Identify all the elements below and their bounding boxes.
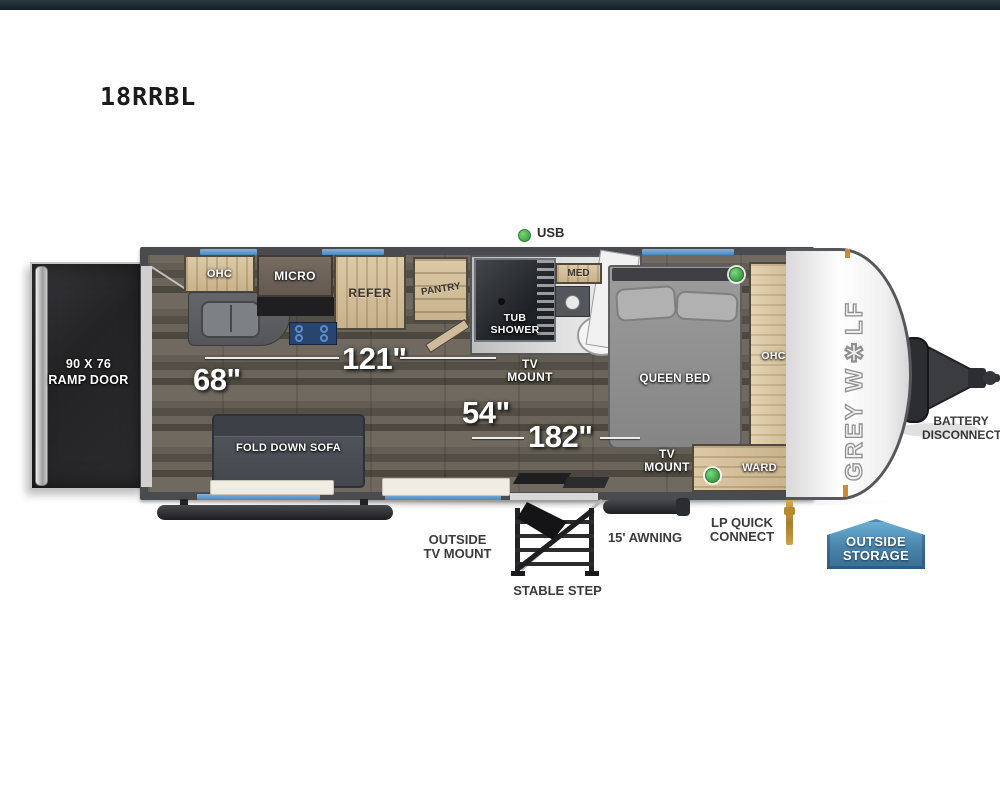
hitch-ball-socket: [983, 371, 997, 385]
awning-end-cap: [676, 498, 690, 516]
sofa-label: FOLD DOWN SOFA: [214, 442, 363, 454]
bedroom-tv-bracket-icon: [563, 477, 610, 488]
tub-label-line1: TUB: [476, 312, 554, 324]
shower-drain-icon: [498, 298, 505, 305]
outside-tv-line1: OUTSIDE: [405, 533, 510, 547]
cooktop: [289, 322, 337, 345]
refer-label: REFER: [348, 286, 391, 300]
sink-divider: [230, 305, 232, 332]
outside-storage-badge: OUTSIDE STORAGE: [827, 519, 925, 569]
bedroom-tv-icon: [513, 473, 571, 484]
counter-strip: [257, 297, 335, 316]
a-frame-tongue: [926, 346, 972, 410]
storage-line2: STORAGE: [827, 549, 925, 563]
hitch-shadow: [896, 423, 980, 437]
medicine-cabinet: MED: [555, 263, 602, 284]
step-foot: [511, 571, 525, 576]
entry-landing: [382, 478, 510, 496]
wardrobe: WARD: [692, 444, 793, 492]
ramp-door-size: 90 X 76: [32, 356, 145, 372]
lp-fitting-icon: [784, 507, 795, 515]
usb-indicator-icon: [518, 229, 531, 242]
pantry-label: PANTRY: [420, 281, 461, 298]
floor-pad: [210, 480, 334, 495]
ohc-kitchen-label: OHC: [207, 268, 232, 280]
dimension-line: [205, 357, 339, 359]
ramp-door: 90 X 76 RAMP DOOR: [30, 262, 147, 490]
model-title: 18RRBL: [100, 82, 196, 111]
burner-icon: [295, 334, 303, 342]
sofa-back: [214, 416, 363, 437]
tub-label-line2: SHOWER: [476, 324, 554, 336]
lp-line1: LP QUICK: [702, 516, 782, 530]
stable-step-graphic: [505, 496, 605, 581]
vanity-sink-icon: [565, 295, 580, 310]
ramp-door-label: 90 X 76 RAMP DOOR: [32, 356, 145, 388]
tub-shower: TUB SHOWER: [474, 258, 556, 342]
window: [642, 249, 734, 255]
step-foot: [585, 571, 599, 576]
awning-label: 15' AWNING: [600, 531, 690, 545]
outlet-indicator-icon: [705, 468, 720, 483]
ramp-door-text: RAMP DOOR: [32, 372, 145, 388]
dimension-182: 182": [528, 419, 592, 455]
step-rung: [515, 548, 594, 552]
kitchen-sink: [201, 301, 260, 338]
dimension-line: [400, 357, 496, 359]
storage-line1: OUTSIDE: [827, 535, 925, 549]
queen-bed: QUEEN BED: [608, 265, 742, 449]
outside-storage-text: OUTSIDE STORAGE: [827, 535, 925, 563]
bath-vanity: [555, 286, 590, 317]
overhead-cabinet-kitchen: OHC: [184, 255, 255, 293]
tv-bed-line2: MOUNT: [636, 461, 698, 474]
headboard: [612, 268, 736, 281]
awning-tube: [603, 500, 685, 514]
dimension-line: [472, 437, 524, 439]
dimension-line: [600, 437, 640, 439]
lp-quick-connect-label: LP QUICK CONNECT: [702, 516, 782, 544]
burner-icon: [320, 334, 328, 342]
burner-icon: [320, 325, 328, 333]
grey-wolf-logo: GREY W✱LF: [841, 290, 869, 490]
outside-tv-mount-label: OUTSIDE TV MOUNT: [405, 533, 510, 561]
dimension-121: 121": [342, 341, 406, 377]
pantry: PANTRY: [413, 257, 468, 322]
floorplan-page: 18RRBL USB 90 X 76 RAMP DOOR OHC MICRO R…: [0, 0, 1000, 808]
refrigerator: REFER: [334, 255, 406, 330]
microwave-cabinet: MICRO: [257, 255, 333, 297]
tv-mount-mid-label: TV MOUNT: [498, 358, 562, 384]
pillow: [675, 290, 738, 322]
top-bar: [0, 0, 1000, 10]
outside-tv-mount-bar: [157, 505, 393, 520]
lp-line2: CONNECT: [702, 530, 782, 544]
tv-mid-line2: MOUNT: [498, 371, 562, 384]
ohc-bedroom-label: OHC: [761, 350, 785, 362]
med-label: MED: [567, 268, 589, 279]
usb-label: USB: [537, 225, 564, 240]
outside-tv-line2: TV MOUNT: [405, 547, 510, 561]
burner-icon: [295, 325, 303, 333]
micro-label: MICRO: [274, 269, 316, 283]
stable-step-label: STABLE STEP: [500, 584, 615, 598]
marker-light-icon: [845, 249, 850, 258]
outlet-indicator-icon: [729, 267, 744, 282]
tv-mount-bedroom-label: TV MOUNT: [636, 448, 698, 474]
ramp-opening: [141, 266, 152, 487]
dimension-68: 68": [193, 362, 241, 398]
ward-label: WARD: [742, 462, 777, 474]
pillow: [615, 285, 677, 322]
fold-down-sofa: FOLD DOWN SOFA: [212, 414, 365, 488]
tub-shower-label: TUB SHOWER: [476, 312, 554, 336]
queen-bed-label: QUEEN BED: [610, 373, 740, 385]
dimension-54: 54": [462, 395, 510, 431]
